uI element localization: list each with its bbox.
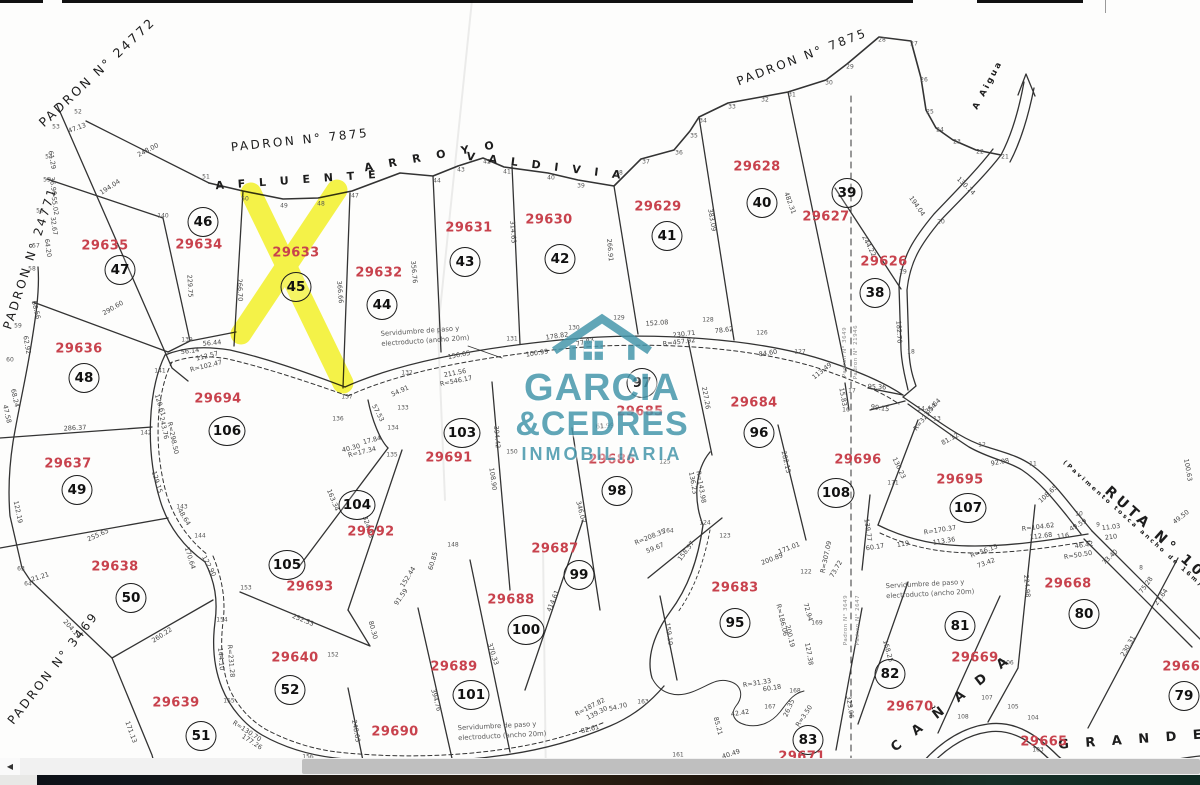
measurement-label: 394.76 (429, 688, 443, 712)
parcel-number-circle: 80 (1069, 599, 1100, 629)
boundary-point-number: 9 (1096, 522, 1100, 529)
measurement-label: 394.42 (492, 425, 502, 448)
measurement-label: 156.65 (447, 349, 471, 361)
boundary-point-number: 55 (43, 177, 51, 184)
boundary-point-number: 123 (719, 533, 730, 540)
measurement-label: R=170.37 (923, 523, 957, 536)
plot-id-label: 29692 (347, 525, 394, 540)
parcel-number-circle: 104 (339, 490, 376, 520)
boundary-point-number: 137 (341, 394, 352, 401)
measurement-label: 120.61 (153, 393, 167, 417)
boundary-point-number: 144 (194, 533, 205, 540)
plot-id-label: 29668 (1044, 577, 1091, 592)
plot-id-label: 29631 (445, 221, 492, 236)
boundary-point-number: 127 (794, 349, 805, 356)
road-label: A F L U E N T E (215, 168, 381, 193)
boundary-point-number: 17 (848, 388, 856, 395)
measurement-label: 84.60 (758, 348, 778, 359)
measurement-label: 21.64 (1152, 587, 1169, 607)
parcel-number-circle: 38 (860, 278, 891, 308)
measurement-label: 248.63 (350, 719, 362, 743)
boundary-point-number: 169 (811, 620, 822, 627)
measurement-label: 73.72 (828, 559, 844, 579)
boundary-point-number: 105 (1007, 704, 1018, 711)
measurement-label: 224.98 (1022, 574, 1032, 597)
boundary-point-number: 24 (936, 127, 944, 134)
road-label: G R A N D E (1058, 727, 1200, 752)
measurement-label: 95.36 (867, 383, 886, 392)
parcel-number-circle: 48 (69, 363, 100, 393)
plot-id-label: 29694 (194, 392, 241, 407)
measurement-label: 73.42 (976, 556, 996, 570)
boundary-point-number: 122 (800, 569, 811, 576)
boundary-point-number: 133 (397, 405, 408, 412)
measurement-label: 47.58 (1, 404, 13, 424)
parcel-number-circle: 50 (116, 583, 147, 613)
measurement-label: 194.04 (907, 194, 927, 217)
plot-id-label: 29687 (531, 542, 578, 557)
measurement-label: 230.31 (1119, 634, 1137, 658)
boundary-point-number: 63 (17, 566, 25, 573)
measurement-label: 100.63 (1182, 458, 1194, 482)
measurement-label: 112.68 (1029, 531, 1053, 542)
boundary-point-number: 10 (1075, 511, 1083, 518)
padron-label: PADRON N° 24771 (0, 185, 59, 331)
measurement-label: 49.50 (1171, 508, 1191, 526)
measurement-label: 92.08 (990, 456, 1010, 467)
measurement-label: 62.92 (21, 335, 32, 355)
plot-id-label: 29670 (886, 700, 933, 715)
plot-id-label: 29627 (802, 210, 849, 225)
parcel-number-circle: 42 (545, 244, 576, 274)
parcel-number-circle: 107 (950, 493, 987, 523)
boundary-point-number: 143 (176, 504, 187, 511)
measurement-label: 113.49 (811, 361, 834, 381)
boundary-point-number: 148 (447, 542, 458, 549)
boundary-point-number: 12 (978, 442, 986, 449)
boundary-point-number: 19 (899, 269, 907, 276)
plot-id-label: 29639 (152, 696, 199, 711)
measurement-label: 32.67 (49, 216, 60, 236)
parcel-number-circle: 103 (444, 418, 481, 448)
scrollbar-thumb[interactable] (302, 759, 1200, 774)
boundary-point-number: 126 (756, 330, 767, 337)
measurement-label: 255.65 (86, 527, 110, 544)
parcel-number-circle: 39 (832, 178, 863, 208)
plot-id-label: 29688 (487, 593, 534, 608)
boundary-point-number: 27 (910, 41, 918, 48)
measurement-label: 346.07 (574, 500, 587, 524)
boundary-point-number: 108 (957, 714, 968, 721)
measurement-label: 64.20 (43, 238, 54, 258)
watermark-name-line3: INMOBILIARIA (513, 443, 691, 466)
parcel-number-circle: 96 (744, 418, 775, 448)
measurement-label: 80.30 (367, 620, 380, 640)
plot-id-label: 29696 (834, 453, 881, 468)
plot-id-label: 29689 (430, 660, 477, 675)
cadastral-map-viewer: 47.13248.00194.04229.75266.70366.66356.7… (0, 0, 1200, 785)
measurement-label: 47.13 (67, 121, 87, 135)
boundary-point-number: 18 (907, 349, 915, 356)
plot-id-label: 29630 (525, 213, 572, 228)
boundary-point-number: 30 (825, 80, 833, 87)
boundary-point-number: 14 (917, 406, 925, 413)
measurement-label: 366.66 (335, 280, 345, 303)
measurement-label: 42.42 (730, 708, 750, 719)
measurement-label: 129.15 (150, 470, 164, 494)
parcel-number-circle: 98 (602, 476, 633, 506)
boundary-point-number: 22 (976, 149, 984, 156)
boundary-point-number: 49 (280, 203, 288, 210)
boundary-point-number: 140 (157, 213, 168, 220)
plot-id-label: 29640 (271, 651, 318, 666)
boundary-point-number: 153 (240, 585, 251, 592)
measurement-label: 130.74 (955, 175, 977, 197)
measurement-label: 260.22 (150, 625, 173, 644)
boundary-point-number: 60 (6, 357, 14, 364)
measurement-label: 314.63 (508, 220, 518, 243)
boundary-point-number: 50 (241, 196, 249, 203)
boundary-point-number: 167 (764, 704, 775, 711)
boundary-point-number: 171 (887, 480, 898, 487)
parcel-number-circle: 100 (508, 615, 545, 645)
measurement-label: 60.18 (762, 683, 782, 694)
plot-id-label: 29626 (860, 255, 907, 270)
boundary-point-number: 16 (842, 407, 850, 414)
boundary-point-number: 34 (699, 118, 707, 125)
measurement-label: 290.60 (101, 299, 125, 317)
measurement-label: 139.77 (862, 518, 873, 542)
road-label: V A L D I V I A (466, 150, 627, 182)
measurement-label: 57.53 (370, 403, 386, 423)
measurement-label: 91.59 (392, 587, 409, 607)
boundary-point-number: 141 (154, 368, 165, 375)
measurement-label: 144.10 (216, 647, 226, 670)
measurement-label: 122.19 (12, 500, 25, 524)
boundary-point-number: 136 (332, 416, 343, 423)
plot-id-label: 29635 (81, 239, 128, 254)
parcel-number-circle: 44 (367, 290, 398, 320)
measurement-label: 56.44 (202, 338, 221, 348)
plot-id-label: 29629 (634, 200, 681, 215)
measurement-label: 414.61 (545, 589, 561, 613)
parcel-number-circle: 52 (275, 675, 306, 705)
plot-id-label: 29684 (730, 396, 777, 411)
measurement-label: R=143.98 (694, 470, 708, 504)
plot-id-label: 29628 (733, 160, 780, 175)
boundary-point-number: 152 (327, 652, 338, 659)
parcel-number-circle: 81 (945, 611, 976, 641)
plot-id-label: 29665 (1020, 735, 1067, 750)
measurement-label: 127.38 (803, 642, 815, 666)
parcel-number-circle: 40 (747, 188, 778, 218)
measurement-label: 21.21 (30, 570, 50, 583)
measurement-label: 98.56 (30, 300, 43, 320)
measurement-label: 75.28 (1137, 575, 1154, 595)
measurement-label: 248.00 (136, 141, 160, 158)
measurement-label: 108.65 (1037, 483, 1059, 504)
parcel-number-circle: 49 (62, 475, 93, 505)
measurement-label: 200.89 (760, 551, 784, 567)
parcel-number-circle: 82 (875, 659, 906, 689)
parcel-number-circle: 101 (453, 680, 490, 710)
measurement-label: 49.59 (1068, 517, 1088, 533)
watermark-name-line1: GARCIA (513, 369, 691, 407)
parcel-number-circle: 79 (1169, 681, 1200, 711)
padron-division-label: Padron N° 2647 (855, 595, 861, 645)
boundary-point-number: 21 (1001, 154, 1009, 161)
measurement-label: 356.76 (409, 260, 419, 283)
plot-id-label: 29683 (711, 581, 758, 596)
measurement-label: 200.19 (784, 624, 797, 648)
measurement-label: R=231.28 (226, 644, 237, 677)
boundary-point-number: 35 (690, 133, 698, 140)
measurement-label: 252.53 (291, 612, 315, 628)
boundary-point-number: 23 (953, 139, 961, 146)
boundary-point-number: 64 (24, 581, 32, 588)
boundary-point-number: 128 (702, 317, 713, 324)
measurement-label: 122.90 (200, 554, 218, 578)
boundary-point-number: 54 (45, 154, 53, 161)
measurement-label: 68.24 (9, 388, 21, 408)
measurement-label: 286.37 (63, 423, 86, 432)
parcel-number-circle: 41 (652, 221, 683, 251)
measurement-label: 210 (1104, 532, 1117, 541)
measurement-label: 229.75 (185, 274, 194, 297)
boundary-point-number: 107 (981, 695, 992, 702)
scroll-left-arrow-icon: ◀ (7, 762, 13, 771)
boundary-point-number: 52 (74, 109, 82, 116)
measurement-label: 26.35 (782, 698, 797, 718)
padron-division-label: Padron N° 21946 (853, 325, 859, 379)
measurement-label: 81.12 (940, 431, 960, 447)
plot-id-label: 29632 (355, 266, 402, 281)
measurement-label: 60.85 (426, 551, 439, 571)
parcel-number-circle: 46 (188, 207, 219, 237)
boundary-point-number: 168 (789, 688, 800, 695)
measurement-label: 11.03 (1101, 522, 1120, 532)
bottom-strip-dark (37, 775, 1200, 785)
plot-id-label: 29690 (371, 725, 418, 740)
house-icon (547, 312, 657, 362)
parcel-number-circle: 51 (186, 721, 217, 751)
measurement-label: 54.91 (390, 384, 410, 399)
parcel-number-circle: 47 (105, 255, 136, 285)
boundary-point-number: 132 (401, 370, 412, 377)
plot-id-label: 29637 (44, 457, 91, 472)
boundary-point-number: 11 (1029, 461, 1037, 468)
boundary-point-number: 31 (788, 92, 796, 99)
boundary-point-number: 47 (351, 193, 359, 200)
servidumbre-note: Servidumbre de paso yelectroducto (ancho… (380, 323, 469, 349)
boundary-point-number: 29 (846, 64, 854, 71)
plot-id-label: 29669 (951, 651, 998, 666)
boundary-point-number: 124 (699, 520, 710, 527)
parcel-number-circle: 95 (720, 608, 751, 638)
measurement-label: R=56.15 (969, 542, 999, 559)
boundary-point-number: 40 (547, 175, 555, 182)
padron-division-label: Padron N° 3649 (842, 327, 848, 377)
padron-label: PADRON N° 24772 (36, 14, 159, 130)
measurement-label: R=102.47 (189, 358, 223, 374)
measurement-label: 170.64 (183, 546, 197, 570)
measurement-label: 383.09 (706, 208, 718, 232)
measurement-label: 194.04 (98, 177, 121, 196)
boundary-point-number: 139 (181, 337, 192, 344)
parcel-number-circle: 99 (564, 560, 595, 590)
boundary-point-number: 25 (926, 109, 934, 116)
padron-label: PADRON N° 7875 (230, 126, 370, 154)
plot-id-label: 29638 (91, 560, 138, 575)
measurement-label: 227.26 (700, 386, 712, 410)
measurement-label: 482.31 (782, 191, 797, 215)
plot-id-label: 29634 (175, 238, 222, 253)
measurement-label: 159.10 (663, 622, 674, 646)
servidumbre-note: Servidumbre de paso yelectroducto (ancho… (885, 577, 974, 602)
measurement-label: 323.06 (844, 695, 855, 719)
road-label: A Aigua (971, 59, 1005, 112)
measurement-label: 60.17 (865, 542, 885, 553)
boundary-point-number: 44 (433, 178, 441, 185)
boundary-point-number: 163 (637, 699, 648, 706)
boundary-point-number: 37 (642, 159, 650, 166)
measurement-label: 59.67 (645, 541, 665, 555)
boundary-point-number: 48 (317, 201, 325, 208)
scroll-left-button[interactable]: ◀ (0, 758, 20, 775)
boundary-point-number: 13 (933, 416, 941, 423)
boundary-point-number: 51 (202, 174, 210, 181)
measurement-label: 15.83 (837, 387, 848, 407)
parcel-number-circle: 43 (450, 247, 481, 277)
servidumbre-note: Servidumbre de paso yelectroducto (ancho… (457, 719, 546, 744)
plot-id-label: 29636 (55, 342, 102, 357)
padron-division-label: Padron N° 3649 (843, 595, 849, 645)
measurement-label: 82.61 (580, 723, 600, 735)
boundary-point-number: 43 (457, 167, 465, 174)
measurement-label: 73.40 (1101, 548, 1120, 567)
boundary-point-number: 164 (662, 528, 673, 535)
parcel-number-circle: 105 (269, 550, 306, 580)
boundary-point-number: 135 (386, 452, 397, 459)
boundary-point-number: 104 (1027, 715, 1038, 722)
padron-label: PADRON N° 7875 (735, 26, 870, 89)
boundary-point-number: 36 (675, 150, 683, 157)
boundary-point-number: 32 (761, 97, 769, 104)
horizontal-scrollbar[interactable]: ◀ (0, 758, 1200, 775)
agency-watermark: GARCIA &CEDRES INMOBILIARIA (513, 312, 691, 466)
boundary-point-number: 155 (223, 698, 234, 705)
plot-id-label: 29633 (272, 246, 319, 261)
plot-id-label: 29695 (936, 473, 983, 488)
measurement-label: 108.90 (487, 467, 498, 491)
boundary-point-number: 39 (577, 183, 585, 190)
measurement-label: 130.23 (891, 456, 908, 480)
measurement-label: 266.70 (236, 278, 245, 301)
parcel-number-circle: 108 (818, 478, 855, 508)
bottom-strip-light (0, 775, 37, 785)
parcel-number-circle: 106 (209, 416, 246, 446)
boundary-point-number: 134 (387, 425, 398, 432)
measurement-label: 152.44 (399, 565, 418, 589)
plot-id-label: 29667 (1162, 660, 1200, 675)
padron-label: PADRON N° 3469 (5, 609, 102, 727)
measurement-label: R=50.50 (1063, 549, 1092, 561)
parcel-number-circle: 45 (281, 272, 312, 302)
boundary-point-number: 41 (503, 169, 511, 176)
watermark-name-line2: &CEDRES (513, 407, 691, 443)
measurement-label: 282.15 (780, 450, 793, 474)
boundary-point-number: 53 (52, 124, 60, 131)
measurement-label: 113.36 (932, 535, 956, 546)
boundary-point-number: 26 (920, 77, 928, 84)
boundary-point-number: 142 (140, 430, 151, 437)
measurement-label: 171.13 (123, 720, 138, 744)
measurement-label: 78.62 (714, 325, 733, 335)
measurement-label: 182.70 (894, 320, 903, 343)
plot-id-label: 29691 (425, 451, 472, 466)
measurement-label: 54.70 (608, 701, 628, 713)
measurement-label: 85.21 (712, 716, 725, 736)
boundary-point-number: 154 (216, 617, 227, 624)
boundary-point-number: 33 (728, 104, 736, 111)
measurement-label: 158.57 (676, 540, 696, 563)
measurement-label: 99.15 (870, 403, 890, 414)
boundary-point-number: 20 (937, 219, 945, 226)
plot-id-label: 29693 (286, 580, 333, 595)
measurement-label: 266.91 (605, 238, 615, 261)
measurement-label: 119 (896, 539, 910, 549)
measurement-label: 370.33 (486, 642, 501, 666)
measurement-label: 116 (1056, 531, 1069, 540)
boundary-point-number: 8 (1139, 565, 1143, 572)
boundary-point-number: 28 (878, 37, 886, 44)
